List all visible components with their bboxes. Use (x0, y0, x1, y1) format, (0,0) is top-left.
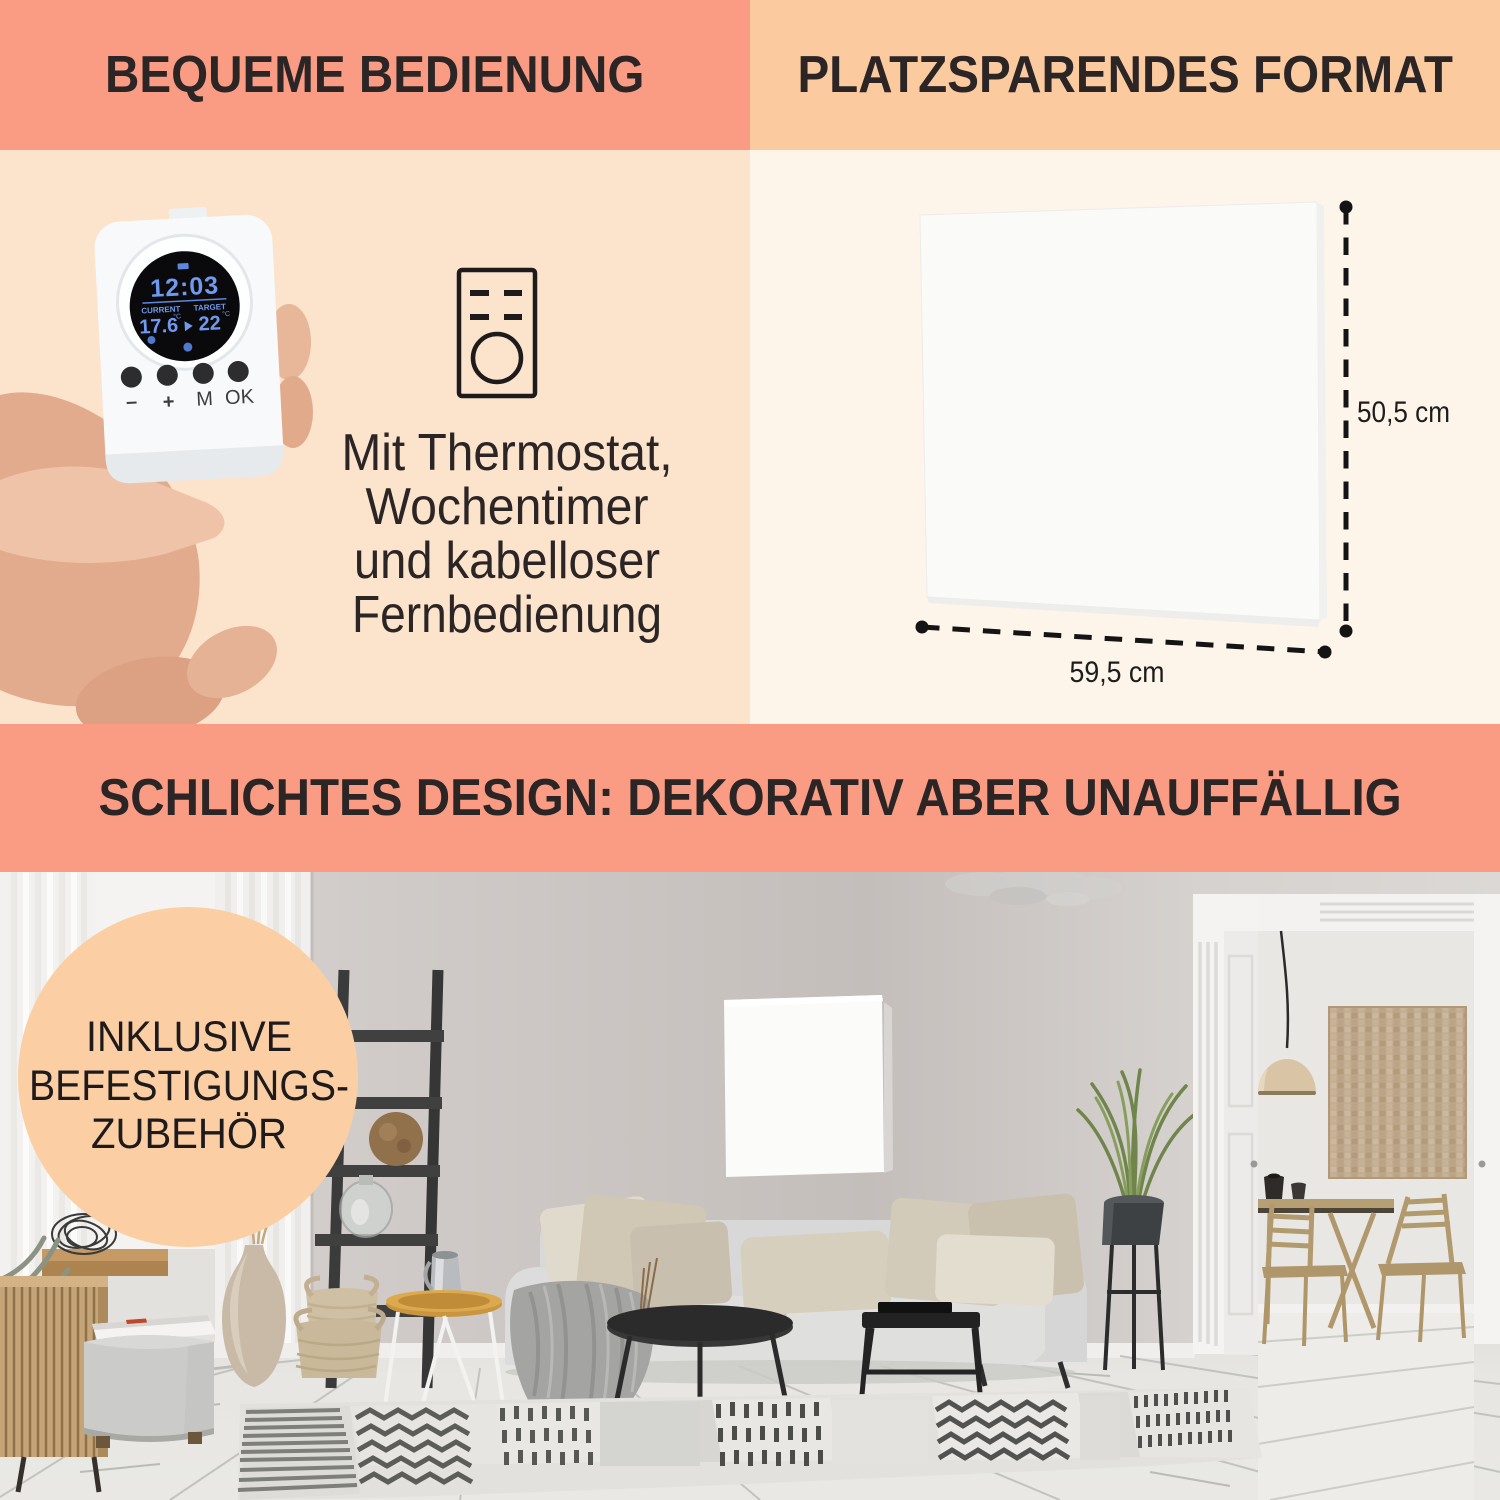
svg-text:50,5 cm: 50,5 cm (1357, 396, 1450, 429)
svg-text:und kabelloser: und kabelloser (354, 532, 660, 590)
svg-text:+: + (162, 391, 175, 414)
svg-text:M: M (196, 388, 214, 411)
svg-text:22: 22 (198, 312, 221, 335)
svg-text:°C: °C (173, 312, 181, 320)
svg-text:INKLUSIVE: INKLUSIVE (86, 1013, 292, 1061)
svg-text:OK: OK (225, 386, 256, 410)
svg-text:BEFESTIGUNGS-: BEFESTIGUNGS- (29, 1062, 349, 1110)
svg-text:12:03: 12:03 (150, 271, 220, 303)
svg-text:°C: °C (222, 310, 230, 318)
svg-text:Mit Thermostat,: Mit Thermostat, (342, 424, 673, 482)
svg-text:ZUBEHÖR: ZUBEHÖR (91, 1110, 287, 1158)
svg-text:59,5 cm: 59,5 cm (1070, 656, 1165, 689)
svg-text:–: – (126, 391, 138, 414)
svg-text:Fernbedienung: Fernbedienung (352, 586, 662, 644)
svg-text:Wochentimer: Wochentimer (366, 478, 649, 536)
